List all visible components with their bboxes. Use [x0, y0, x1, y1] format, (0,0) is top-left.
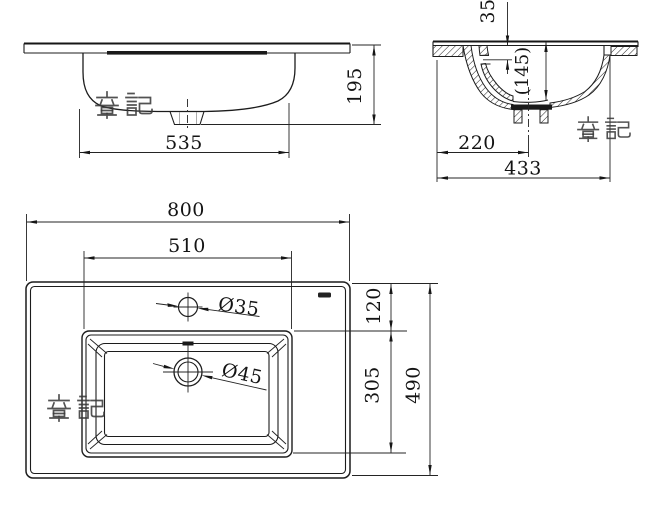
arrowhead [198, 308, 209, 312]
dim-label-305: 305 [362, 366, 384, 404]
arrowhead [428, 465, 431, 475]
arrowhead [506, 36, 509, 46]
dim-label-35: 35 [477, 0, 499, 24]
faucet-crosshair [174, 293, 203, 322]
dim-label-145: (145) [512, 47, 533, 95]
arrowhead [167, 303, 178, 307]
dim-faucet-dia: Ø35 [156, 293, 261, 321]
arrowhead [518, 151, 528, 154]
basin-drawing-svg: 535 195 35 [0, 0, 645, 507]
drain-flange [511, 105, 552, 110]
arrowhead [544, 90, 547, 100]
drain-inner-lines [180, 112, 197, 124]
arrowhead [372, 115, 375, 125]
counter-cut-right [611, 47, 637, 56]
basin-seal-band [107, 51, 267, 55]
arrowhead [600, 176, 610, 179]
arrowhead [389, 443, 392, 453]
overflow-wall-upper-cut [479, 46, 489, 56]
arrowhead [281, 256, 291, 259]
arrowhead [202, 375, 213, 379]
drain-body-left [514, 110, 522, 123]
watermark-stamp [578, 117, 630, 141]
drain-outline [170, 112, 204, 125]
drain-crosshair [163, 345, 213, 393]
bowl-back-wall-cut [550, 55, 610, 108]
dim-195: 195 [201, 45, 381, 125]
arrowhead [27, 220, 37, 223]
bowl-corner-miters [88, 339, 286, 449]
dim-label-535: 535 [165, 132, 203, 154]
dim-label-195: 195 [344, 67, 366, 105]
dim-label-510: 510 [168, 235, 206, 257]
arrowhead [163, 365, 174, 369]
arrowhead [85, 256, 95, 259]
brand-mark [318, 293, 331, 298]
arrowhead [339, 220, 349, 223]
arrowhead [389, 284, 392, 294]
bowl-outline [83, 53, 295, 112]
dim-drain-dia: Ø45 [153, 359, 267, 390]
arrowhead [389, 332, 392, 342]
arrowhead [438, 176, 448, 179]
arrowhead [438, 151, 448, 154]
dim-label-drain-dia: Ø45 [220, 359, 265, 389]
dim-145: (145) [512, 42, 548, 100]
arrowhead [544, 42, 547, 52]
arrowhead [80, 151, 90, 154]
technical-drawing-canvas: 535 195 35 [0, 0, 645, 507]
front-view: 535 195 [24, 44, 381, 159]
dim-label-faucet-dia: Ø35 [217, 293, 261, 321]
bowl-floor-line [513, 100, 548, 102]
arrowhead [389, 321, 392, 331]
arrowhead [506, 60, 509, 70]
plan-view: Ø35 Ø45 800 510 [26, 199, 438, 478]
watermark-stamp [96, 92, 152, 118]
dim-35: 35 [477, 0, 509, 74]
counter-cut-left [433, 46, 463, 57]
dim-label-433: 433 [504, 158, 542, 180]
arrowhead [279, 151, 289, 154]
dim-label-120: 120 [363, 287, 385, 325]
arrowhead [372, 46, 375, 56]
overflow-slot [183, 342, 194, 346]
dim-label-490: 490 [403, 366, 425, 404]
dim-label-220: 220 [458, 132, 496, 154]
section-view: 35 (145) 220 433 [433, 0, 638, 182]
dim-120: 120 [294, 284, 438, 332]
bowl-rim-outer [82, 331, 292, 457]
dim-label-800: 800 [167, 199, 205, 221]
drain-body-right [540, 110, 548, 123]
arrowhead [428, 284, 431, 294]
bowl-rim-inner [86, 335, 288, 453]
